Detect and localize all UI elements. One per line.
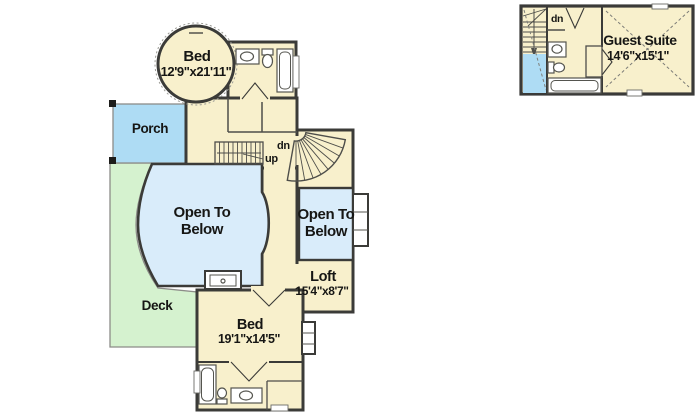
guest-suite-label: Guest Suite: [603, 32, 677, 48]
porch-post: [109, 157, 116, 164]
stair-dn-label: dn: [277, 140, 290, 152]
turret-bed-label: Bed: [183, 48, 210, 65]
sink-basin: [240, 391, 253, 400]
left-wall-window: [194, 371, 200, 393]
bath-door-gap: [229, 358, 269, 366]
guest-suite-dims: 14'6"x15'1": [607, 49, 670, 63]
deck-label: Deck: [142, 298, 174, 313]
right-bay-window: [353, 194, 368, 246]
stair-up-label: up: [265, 153, 278, 165]
open-below-right-label-2: Below: [305, 223, 348, 240]
guest-stair-dn-label: dn: [551, 13, 563, 25]
floor-plan-canvas: Bed 12'9"x21'11" Porch Open To Below Ope…: [0, 0, 700, 412]
guest-suite-plan: dn Guest Suite 14'6"x15'1": [521, 4, 693, 96]
window-seat-knob: [221, 279, 225, 283]
bed-bay-window: [302, 322, 315, 354]
floor-plan-page: Bed 12'9"x21'11" Porch Open To Below Ope…: [0, 0, 700, 412]
stair-hall-block: [186, 98, 297, 168]
bath-window: [293, 56, 299, 88]
loft-dims: 15'4"x8'7": [295, 284, 348, 298]
toilet-bowl: [554, 63, 565, 72]
bottom-step-tab: [271, 405, 288, 411]
open-below-left-label-1: Open To: [174, 204, 231, 221]
bottom-wall-tab: [627, 90, 642, 96]
guest-open-below: [523, 54, 546, 93]
toilet-bowl: [263, 55, 273, 68]
lower-bed-label: Bed: [237, 317, 263, 333]
open-below-left-label-2: Below: [181, 221, 224, 238]
main-floor-plan: Bed 12'9"x21'11" Porch Open To Below Ope…: [109, 23, 368, 411]
porch-label: Porch: [132, 121, 168, 136]
toilet-tank: [217, 399, 227, 404]
sink-basin: [241, 52, 254, 61]
lower-bed-dims: 19'1"x14'5": [218, 332, 281, 346]
sink-basin: [552, 45, 562, 53]
porch-post: [109, 100, 116, 107]
loft-label: Loft: [310, 269, 336, 285]
open-below-right-label-1: Open To: [298, 206, 355, 223]
toilet-bowl: [218, 388, 227, 398]
turret-bed-dims: 12'9"x21'11": [161, 64, 232, 79]
top-wall-tab: [652, 4, 668, 9]
